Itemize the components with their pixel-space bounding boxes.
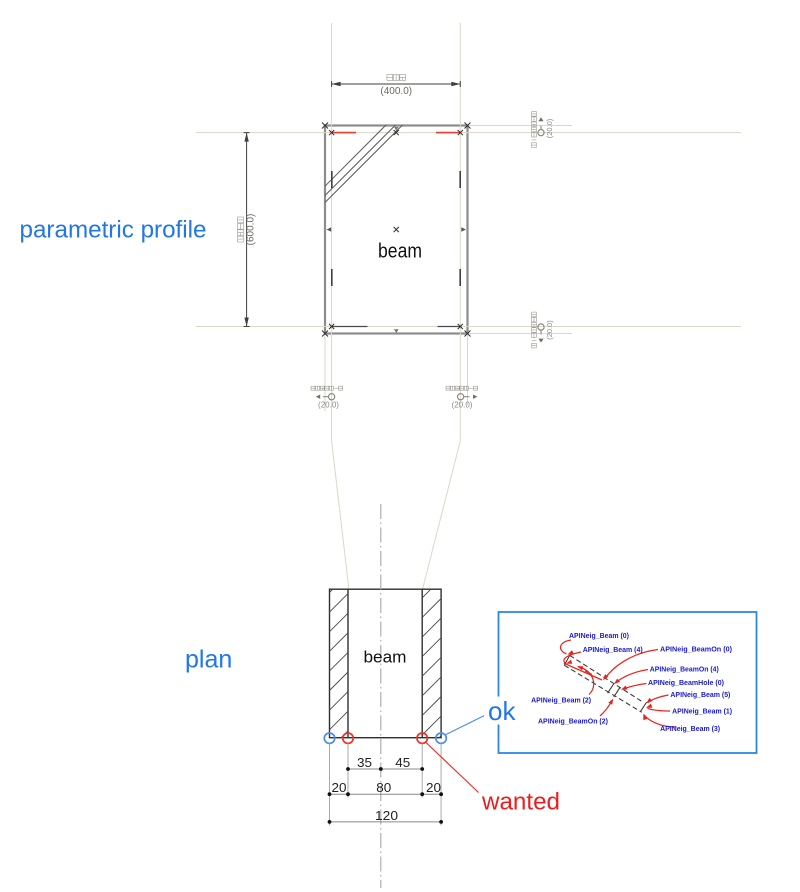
svg-text:APINeig_Beam (0): APINeig_Beam (0) [569,631,629,640]
svg-text:APINeig_Beam (1): APINeig_Beam (1) [672,706,732,715]
svg-text:APINeig_BeamOn (4): APINeig_BeamOn (4) [650,664,719,673]
svg-text:35: 35 [357,755,372,770]
svg-text:120: 120 [375,808,398,823]
svg-text:beam: beam [364,648,407,667]
svg-text:APINeig_Beam (2): APINeig_Beam (2) [531,695,591,704]
svg-text:(20.0): (20.0) [545,320,554,340]
svg-text:plan: plan [185,646,232,674]
svg-text:(20.0): (20.0) [452,401,473,410]
svg-text:(600.0): (600.0) [246,214,257,246]
svg-text:APINeig_BeamOn (0): APINeig_BeamOn (0) [660,644,733,653]
svg-text:APINeig_Beam (3): APINeig_Beam (3) [660,724,720,733]
svg-text:ok: ok [488,696,516,726]
svg-text:20: 20 [426,780,441,795]
svg-text:APINeig_Beam (4): APINeig_Beam (4) [583,645,643,654]
svg-text:APINeig_Beam (5): APINeig_Beam (5) [670,690,730,699]
svg-text:(20.0): (20.0) [318,401,339,410]
svg-text:(400.0): (400.0) [380,86,412,97]
svg-text:parametric profile: parametric profile [20,217,207,244]
svg-text:20: 20 [332,780,347,795]
svg-text:45: 45 [395,755,410,770]
svg-text:wanted: wanted [481,789,560,816]
svg-text:APINeig_BeamOn (2): APINeig_BeamOn (2) [538,717,608,726]
svg-text:beam: beam [378,241,422,263]
svg-text:80: 80 [376,780,391,795]
svg-text:(20.0): (20.0) [545,118,554,138]
svg-text:APINeig_BeamHole (0): APINeig_BeamHole (0) [648,678,725,687]
